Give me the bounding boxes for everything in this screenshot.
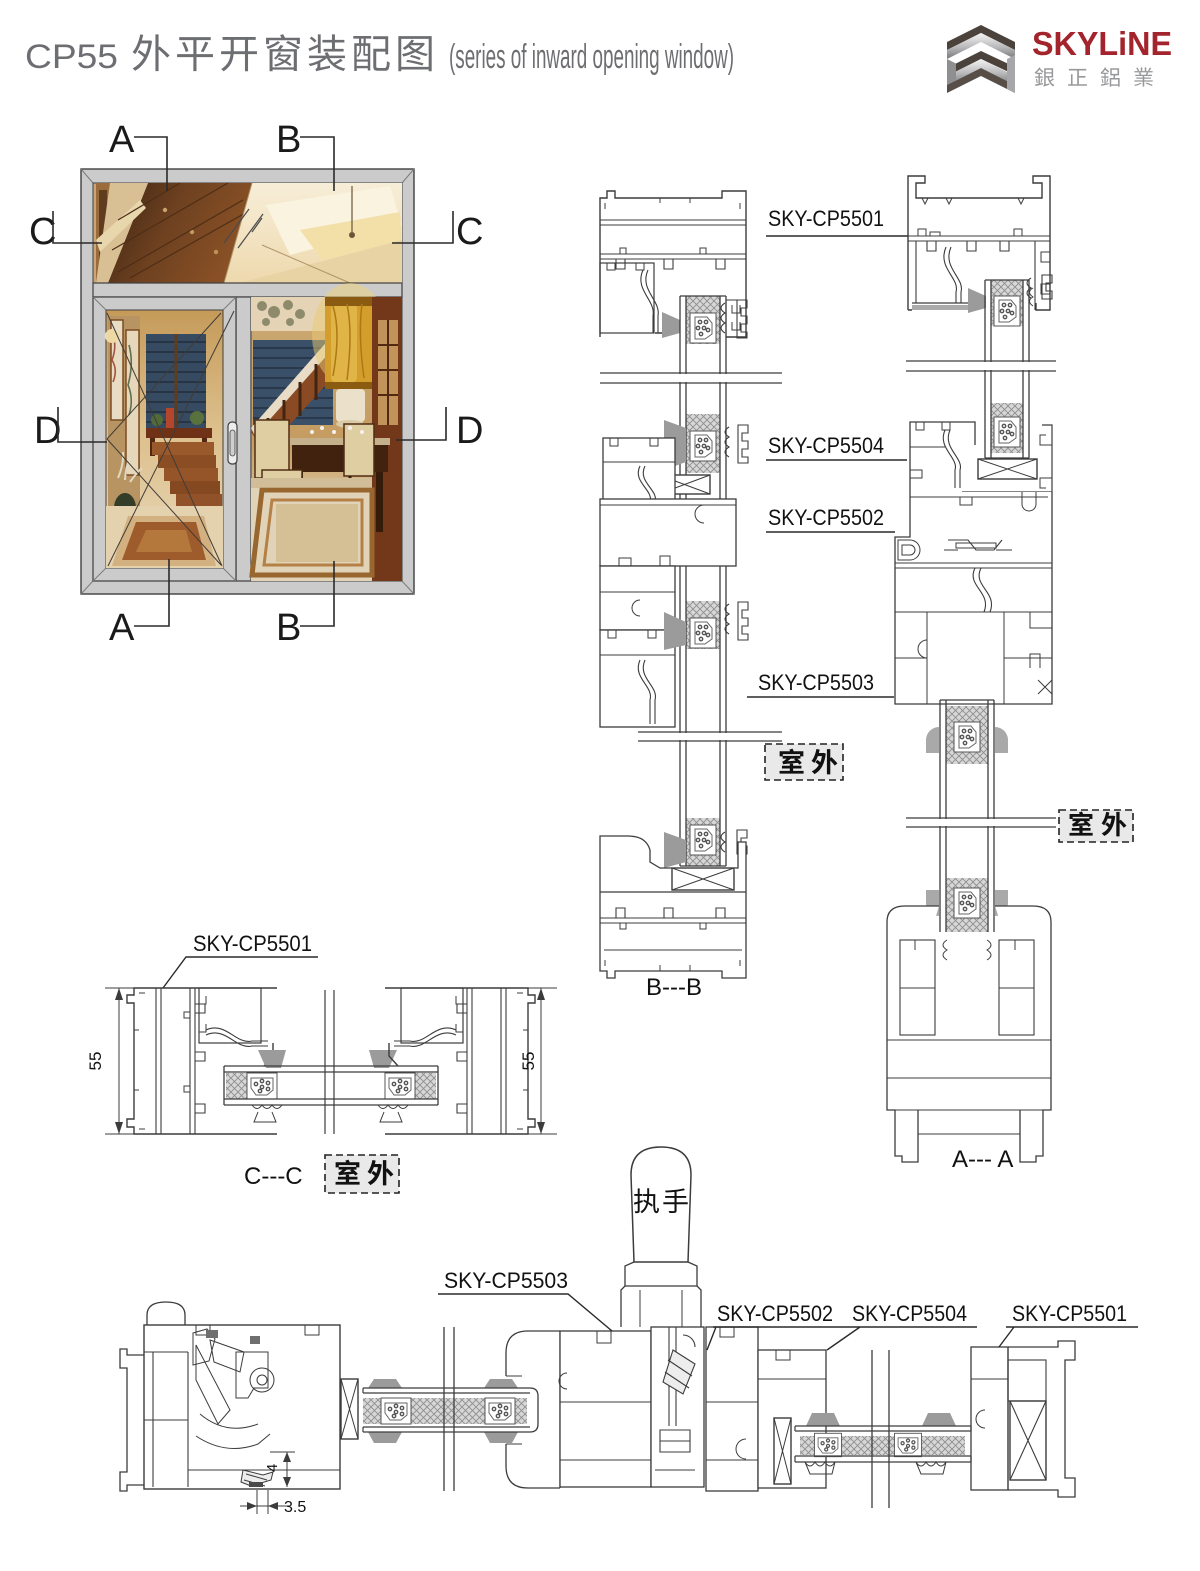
svg-text:A--- A: A--- A [952,1146,1013,1173]
svg-text:C---C: C---C [244,1163,303,1190]
svg-text:4: 4 [264,1464,281,1472]
svg-text:SKY-CP5501: SKY-CP5501 [768,206,884,231]
svg-text:B: B [276,607,301,649]
svg-text:CP55: CP55 [25,38,118,76]
svg-text:3.5: 3.5 [284,1499,306,1516]
svg-text:55: 55 [86,1052,105,1071]
svg-text:SKY-CP5501: SKY-CP5501 [1012,1301,1127,1326]
svg-text:SKY-CP5503: SKY-CP5503 [758,670,874,695]
svg-text:55: 55 [519,1052,538,1071]
svg-text:SKY-CP5502: SKY-CP5502 [768,505,884,530]
svg-text:B: B [276,119,301,161]
svg-text:SKY-CP5504: SKY-CP5504 [768,433,884,458]
svg-text:C: C [456,211,483,253]
svg-text:D: D [456,410,483,452]
svg-text:A: A [109,119,135,161]
svg-text:(series of inward opening wind: (series of inward opening window) [449,38,734,76]
svg-text:SKYLiNE: SKYLiNE [1032,25,1172,62]
svg-text:SKY-CP5503: SKY-CP5503 [444,1268,568,1293]
svg-text:A: A [109,607,135,649]
svg-text:B---B: B---B [646,974,702,1001]
svg-text:SKY-CP5502: SKY-CP5502 [717,1301,833,1326]
svg-text:SKY-CP5501: SKY-CP5501 [193,931,312,956]
svg-text:SKY-CP5504: SKY-CP5504 [852,1301,967,1326]
